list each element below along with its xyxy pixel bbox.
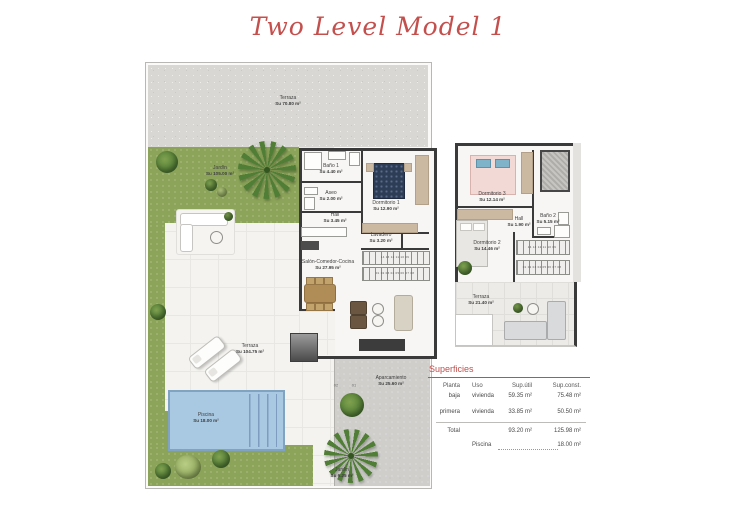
sink (328, 151, 346, 160)
planter-box (455, 314, 493, 346)
terrace-sofa-horizontal (504, 321, 547, 340)
bush (155, 463, 171, 479)
label-terraza-top: Terraza Su 70.80 m² (275, 95, 301, 107)
cell-piscina-label: Piscina (472, 442, 491, 448)
cell-uso: vivienda (472, 409, 494, 415)
label-terraza-upper: Terraza Su 21.40 m² (468, 294, 494, 306)
terrace-side-table (527, 303, 539, 315)
bush (150, 304, 166, 320)
nightstand (404, 163, 412, 172)
bush (212, 450, 230, 468)
terrace-sofa-vertical (547, 301, 566, 340)
chair (324, 303, 333, 311)
cell-uso: vivienda (472, 393, 494, 399)
ground-floor-plan: 14 13 12 11 10 09 01 02 03 04 05 06 07 0… (145, 62, 432, 489)
shower (554, 225, 570, 238)
garden-bottom (148, 445, 313, 486)
outdoor-sofa (394, 295, 413, 331)
cell-planta: baja (438, 393, 460, 399)
garden-sofa-vertical (180, 224, 193, 252)
bbq-grill (290, 333, 318, 362)
label-bano2: Baño 2 Su 5.15 m² (537, 213, 560, 225)
label-piscina: Piscina Su 18.00 m² (193, 412, 219, 424)
label-hall-upper: Hall Su 1.90 m² (508, 216, 531, 228)
bush (217, 187, 227, 197)
stair-numbers: 01 02 03 04 05 06 07 08 (376, 271, 415, 274)
palm-tree (238, 141, 296, 199)
roof-edge (573, 143, 581, 282)
table-separator (436, 422, 586, 423)
tree (340, 393, 364, 417)
outdoor-bar (359, 339, 405, 351)
cell-total-label: Total (438, 428, 460, 434)
bed-double (373, 163, 405, 199)
cell-sup-util: 59.35 m² (500, 393, 532, 399)
toilet (558, 212, 569, 225)
label-jardin-small: Jardín Su 6.25 m² (331, 467, 354, 479)
label-salon: Salón-Comedor-Cocina Su 27.95 m² (302, 259, 354, 271)
nightstand (366, 163, 374, 172)
label-bano1: Baño 1 Su 4.40 m² (320, 163, 343, 175)
wall (361, 248, 429, 250)
col-header-planta: Planta (438, 383, 460, 389)
cell-total-sup-util: 93.20 m² (500, 428, 532, 434)
wardrobe-band (457, 209, 513, 220)
toilet (304, 197, 315, 210)
kitchen-counter (301, 227, 347, 237)
label-aseo: Aseo Su 2.00 m² (320, 190, 343, 202)
col-header-sup-const: Sup.const. (548, 383, 581, 389)
summary-title-rule (428, 377, 590, 378)
potted-plant (224, 212, 233, 221)
wall (458, 206, 534, 208)
cell-planta: primera (438, 409, 460, 415)
tree (156, 151, 178, 173)
chair (324, 277, 333, 285)
pool-lane-lines (249, 394, 277, 447)
wardrobe (521, 152, 533, 194)
bush (205, 179, 217, 191)
upper-floor-plan: 14 13 12 11 10 09 01 02 03 04 05 06 07 0… (455, 143, 583, 360)
parking-spot-number: 02 (334, 383, 338, 388)
label-aparcamiento: Aparcamiento Su 25.60 m² (376, 375, 407, 387)
label-dormitorio2: Dormitorio 2 Su 14.46 m² (473, 240, 500, 252)
chair (315, 277, 324, 285)
wall (302, 181, 362, 183)
chair (315, 303, 324, 311)
page-title: Two Level Model 1 (0, 12, 756, 41)
wall (361, 151, 363, 234)
col-header-uso: Uso (472, 383, 483, 389)
sink (304, 187, 318, 195)
label-dormitorio1: Dormitorio 1 Su 12.90 m² (372, 200, 399, 212)
pool (168, 390, 285, 451)
floor-plan-sheet: Two Level Model 1 14 13 12 11 10 09 01 0… (0, 0, 756, 528)
pillow (460, 223, 472, 231)
sink (537, 227, 551, 235)
bush (175, 455, 201, 479)
cell-sup-const: 50.50 m² (548, 409, 581, 415)
cell-total-sup-const: 125.98 m² (546, 428, 581, 434)
toilet (349, 152, 360, 166)
void-hatched-area (540, 150, 570, 192)
stair-numbers: 14 13 12 11 10 09 (381, 255, 409, 258)
bed-pink (470, 155, 516, 195)
dining-table (304, 284, 336, 303)
label-terraza-patio: Terraza Su 104.75 m² (236, 343, 264, 355)
armchair (350, 315, 367, 329)
garden-table (210, 231, 223, 244)
plant (458, 261, 472, 275)
col-header-sup-util: Sup.útil (506, 383, 532, 389)
label-hall-ground: Hall Su 3.45 m² (324, 212, 347, 224)
pillow (473, 223, 485, 231)
wardrobe (415, 155, 429, 205)
kitchen-island (301, 241, 319, 250)
parking-spot-number: 01 (352, 383, 356, 388)
chair (306, 303, 315, 311)
chair (306, 277, 315, 285)
cell-sup-util: 33.85 m² (500, 409, 532, 415)
dotted-leader (498, 449, 558, 450)
summary-title: Superficies (429, 364, 474, 374)
pillow (495, 159, 510, 168)
label-jardin: Jardín Su 105.00 m² (206, 165, 234, 177)
summary-table: Superficies Planta Uso Sup.útil Sup.cons… (428, 364, 590, 459)
stair-numbers: 01 02 03 04 05 06 07 08 (523, 265, 562, 268)
cell-sup-const: 75.48 m² (548, 393, 581, 399)
pillow (476, 159, 491, 168)
terrace-plant (513, 303, 523, 313)
label-dormitorio3: Dormitorio 3 Su 12.14 m² (478, 191, 505, 203)
cell-piscina-value: 18.00 m² (552, 442, 581, 448)
coffee-table (372, 315, 384, 327)
label-lavadero: Lavadero Su 3.20 m² (370, 232, 393, 244)
coffee-table (372, 303, 384, 315)
wall (513, 232, 515, 282)
armchair (350, 301, 367, 315)
stair-numbers: 14 13 12 11 10 09 (528, 245, 556, 248)
